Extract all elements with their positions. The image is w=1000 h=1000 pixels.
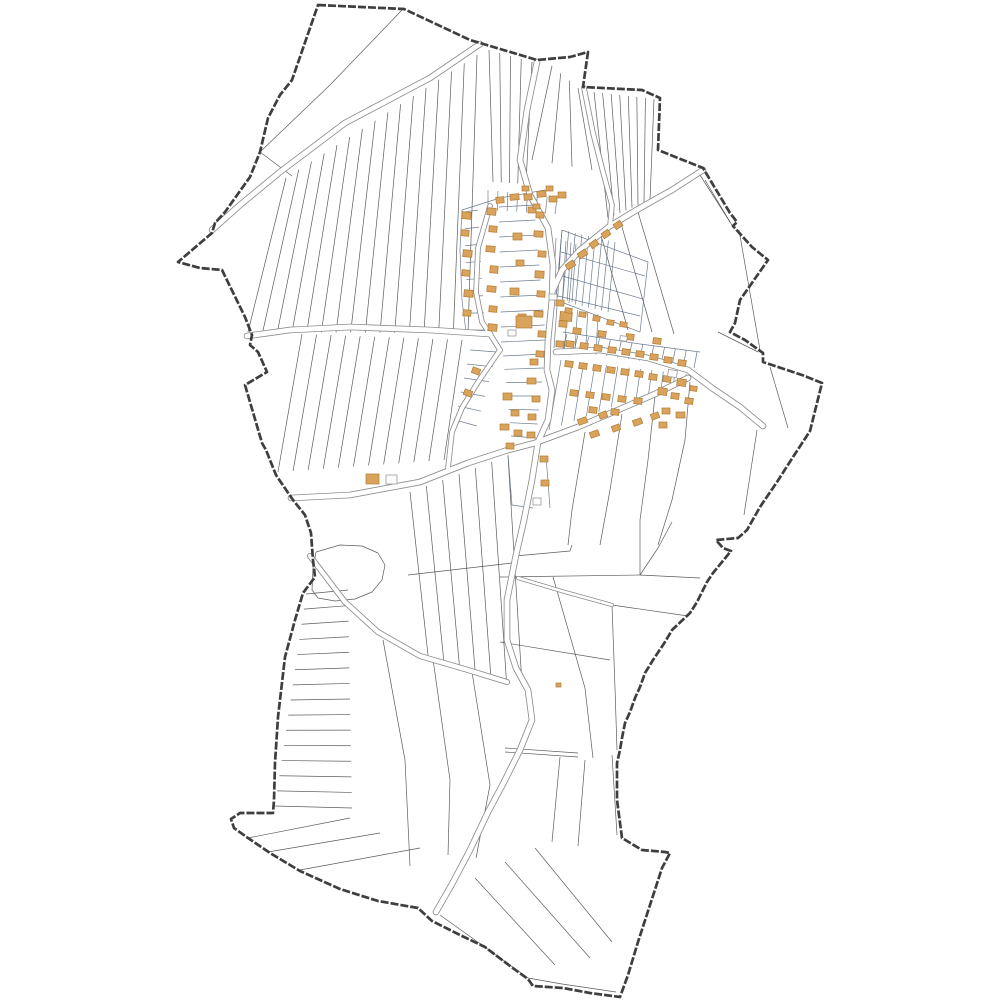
parcel-strip-line [504, 368, 543, 369]
building-unfilled [386, 475, 397, 484]
parcel-strip-line [644, 98, 645, 203]
parcel-strip-line [611, 94, 620, 213]
building [589, 430, 600, 439]
parcel-strip-line [414, 339, 433, 462]
parcel-strip-line [279, 776, 351, 777]
parcel-line [600, 414, 622, 545]
parcel-strip-line [336, 129, 362, 333]
parcel-strip-line [443, 480, 460, 665]
parcel-strip-line [439, 71, 452, 332]
building [541, 480, 549, 486]
building [650, 412, 660, 420]
building-unfilled [668, 369, 678, 377]
building [528, 414, 536, 420]
parcel-strip-line [288, 715, 350, 716]
parcel-strip-line [365, 112, 388, 332]
parcel-strip-line [694, 352, 697, 368]
building [463, 310, 471, 317]
parcel-line [500, 642, 610, 660]
building [536, 351, 544, 357]
road [584, 88, 612, 226]
building [489, 306, 497, 313]
parcel-strip-line [602, 241, 609, 311]
building [463, 250, 473, 258]
building [573, 327, 582, 334]
building [618, 395, 627, 402]
building-unfilled [620, 336, 628, 342]
building [653, 337, 662, 344]
building [533, 204, 540, 209]
parcel-line [475, 878, 555, 965]
building [658, 387, 668, 395]
building [594, 344, 603, 351]
parcel-line [248, 818, 350, 838]
building [620, 322, 628, 328]
parcel-strip-line [291, 699, 351, 700]
building [366, 474, 379, 484]
parcel-line [535, 848, 612, 942]
parcel-strip-line [501, 340, 546, 342]
building [524, 194, 532, 201]
parcel-strip-line [395, 96, 414, 333]
building [558, 192, 566, 198]
parcel-strip-line [637, 97, 638, 205]
parcel-strip-line [500, 53, 502, 183]
parcel-line [515, 545, 572, 556]
building [487, 286, 496, 293]
building [662, 408, 670, 414]
parcel-strip-line [384, 338, 404, 465]
building [534, 311, 543, 317]
parcel-strip-line [399, 338, 419, 463]
building [678, 359, 687, 366]
building [489, 226, 497, 233]
building [462, 212, 472, 220]
building [565, 308, 573, 314]
building [537, 291, 545, 297]
parcel-strip-line [620, 95, 626, 210]
parcel-line [553, 577, 593, 758]
building [527, 432, 535, 438]
building [621, 368, 630, 375]
parcel-strip-line [470, 350, 497, 352]
building [516, 260, 524, 266]
building [510, 194, 519, 201]
parcel-strip-line [282, 761, 352, 762]
parcel-strip-line [307, 145, 337, 332]
building [540, 456, 548, 462]
parcel-line [612, 605, 688, 616]
parcel-strip-line [567, 243, 571, 301]
buildings-layer [366, 186, 697, 687]
building [607, 366, 616, 373]
building [536, 212, 544, 218]
building [522, 186, 529, 191]
parcel-line [658, 382, 690, 545]
building [496, 197, 504, 204]
parcel-line [578, 760, 585, 846]
building [602, 393, 611, 400]
parcel-strip-line [292, 153, 324, 332]
parcel-strip-line [650, 99, 654, 200]
parcel-strip-line [278, 334, 302, 472]
parcel-strip-line [545, 197, 547, 214]
parcel-line [505, 862, 590, 958]
parcel-strip-line [499, 220, 535, 222]
parcel-strip-line [569, 81, 572, 167]
building [636, 350, 645, 357]
building [559, 321, 567, 327]
parcel-strip-line [295, 668, 350, 670]
parcel-strip-line [475, 468, 490, 674]
parcel-strip-line [552, 73, 561, 163]
building [537, 191, 546, 198]
parcel-line [770, 367, 788, 428]
building [556, 300, 564, 306]
building [464, 290, 474, 298]
building [471, 367, 481, 375]
parcel-strip-line [489, 50, 493, 182]
parcel-line [500, 575, 700, 578]
parcel-strip-line [510, 56, 511, 183]
building [532, 396, 540, 402]
commune-boundary-layer [178, 5, 822, 997]
building [535, 271, 544, 278]
parcel-strip-line [275, 806, 352, 808]
parcel-strip-line [500, 250, 538, 252]
parcel-strip-line [465, 227, 479, 229]
road [212, 44, 480, 230]
building [530, 359, 538, 365]
building [593, 316, 601, 322]
parcel-strip-line [323, 336, 345, 469]
parcel-strip-line [506, 382, 542, 383]
building [659, 422, 667, 428]
parcel-line [300, 848, 420, 870]
building [635, 370, 644, 377]
building [538, 331, 546, 337]
parcel-strip-line [302, 621, 349, 624]
building [486, 246, 495, 253]
parcel-strip-line [409, 88, 426, 333]
building [589, 406, 598, 413]
parcel-line [268, 833, 380, 852]
parcel-strip-line [293, 683, 350, 684]
building [527, 378, 536, 384]
parcel-strip-line [459, 474, 475, 670]
building [586, 391, 595, 398]
parcel-line [568, 432, 585, 545]
commune-boundary [178, 5, 822, 997]
building [677, 378, 687, 386]
building [490, 266, 499, 274]
parcel-strip-line [628, 96, 632, 208]
building [690, 386, 698, 392]
building [598, 330, 607, 337]
building [500, 424, 509, 430]
parcel-strip-line [308, 335, 331, 470]
building [514, 430, 522, 436]
building [671, 392, 680, 399]
parcel-strip-line [277, 791, 352, 793]
parcel-strip-line [248, 178, 286, 332]
building [676, 412, 685, 418]
building [607, 320, 615, 326]
building [632, 418, 643, 427]
building [649, 373, 658, 380]
cadastral-map-stage[interactable] [0, 0, 1000, 1000]
parcel-strip-line [492, 462, 507, 679]
building [579, 312, 587, 318]
parcel-strip-line [500, 295, 542, 297]
building [506, 443, 514, 449]
building [510, 288, 519, 295]
building [580, 342, 589, 349]
parcel-line [705, 180, 733, 227]
parcel-strip-line [608, 242, 615, 312]
building [622, 348, 631, 355]
building [664, 356, 673, 363]
parcel-strip-line [507, 192, 508, 211]
building [579, 362, 588, 369]
building [570, 389, 579, 396]
parcel-line [552, 757, 560, 842]
parcel-strip-line [453, 63, 464, 333]
road [291, 443, 535, 498]
building [538, 251, 546, 257]
building [487, 208, 497, 216]
parcel-line [612, 605, 617, 750]
parcel-strip-line [351, 121, 375, 333]
parcel-strip-line [429, 339, 448, 461]
parcel-line [739, 230, 760, 350]
parcel-strip-line [424, 80, 439, 333]
parcel-strip-line [595, 239, 602, 309]
parcel-strip-line [576, 235, 582, 305]
building [513, 233, 522, 240]
building-unfilled [533, 498, 541, 505]
building [593, 364, 602, 371]
building-unfilled [549, 294, 557, 300]
building [556, 683, 561, 687]
parcel-strip-line [599, 365, 607, 412]
building [503, 393, 512, 400]
building [556, 341, 564, 347]
parcel-strip-line [510, 423, 538, 424]
building [650, 353, 659, 360]
building [534, 231, 543, 237]
parcel-strip-line [299, 637, 349, 640]
parcel-strip-line [277, 162, 311, 333]
road [518, 578, 612, 605]
building [546, 186, 553, 191]
building [608, 346, 617, 353]
road-casing [553, 170, 703, 290]
building [488, 324, 498, 332]
parcel-strip-line [304, 606, 349, 610]
parcel-line [744, 430, 757, 515]
parcel-strip-line [500, 280, 541, 282]
parcel-line [383, 640, 410, 866]
building [511, 410, 519, 416]
cadastral-map [0, 0, 1000, 1000]
parcel-strip-line [297, 652, 349, 654]
building [565, 360, 574, 367]
parcel-line [638, 212, 674, 334]
building-unfilled [508, 330, 516, 336]
parcel-strip-line [293, 335, 316, 471]
parcel-strip-line [321, 137, 349, 332]
roads-layer [212, 44, 763, 912]
building [566, 340, 575, 347]
building [461, 230, 469, 237]
parcel-strip-line [338, 336, 360, 467]
building [549, 196, 557, 202]
building [462, 270, 470, 277]
building [611, 408, 620, 415]
building [634, 397, 643, 404]
parcel-line [640, 522, 672, 575]
building [516, 316, 532, 328]
building [685, 397, 694, 404]
parcel-line [408, 563, 512, 575]
parcel-line [433, 659, 450, 855]
parcel-line [559, 275, 643, 299]
